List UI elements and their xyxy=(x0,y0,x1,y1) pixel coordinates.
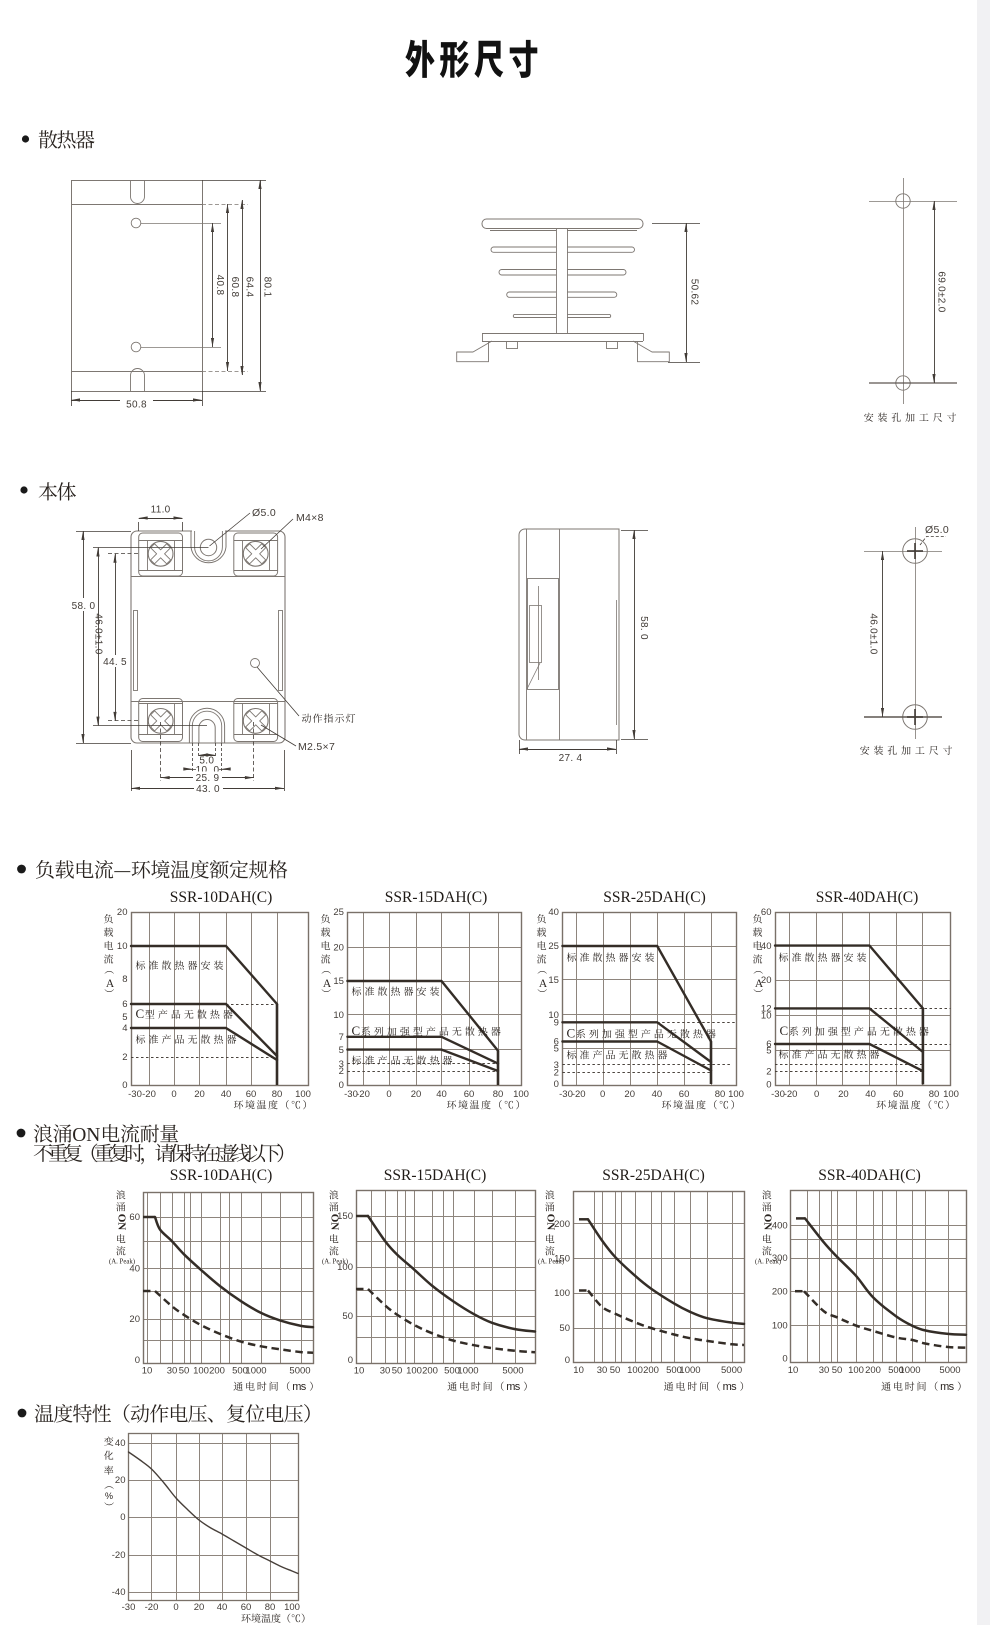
svg-text:2: 2 xyxy=(339,1066,344,1077)
svg-text:5: 5 xyxy=(339,1045,344,1056)
svg-text:60: 60 xyxy=(241,1602,252,1613)
svg-text:SSR-25DAH(C): SSR-25DAH(C) xyxy=(602,1167,704,1184)
svg-text:10: 10 xyxy=(573,1365,584,1376)
svg-text:100: 100 xyxy=(284,1602,300,1613)
svg-text:ON: ON xyxy=(545,1214,557,1231)
svg-text:ON: ON xyxy=(116,1214,128,1231)
svg-text:58. 0: 58. 0 xyxy=(638,616,649,640)
svg-text:s: s xyxy=(731,1381,737,1393)
svg-text:50: 50 xyxy=(392,1366,403,1377)
svg-text:40: 40 xyxy=(761,941,772,952)
svg-text:46.0±1.0: 46.0±1.0 xyxy=(93,613,104,654)
svg-text:0: 0 xyxy=(120,1512,125,1523)
svg-text:80: 80 xyxy=(272,1089,283,1100)
svg-text:50: 50 xyxy=(179,1366,190,1377)
svg-text:SSR-15DAH(C): SSR-15DAH(C) xyxy=(385,889,487,906)
svg-text:M2.5×7: M2.5×7 xyxy=(298,741,335,753)
svg-text:10: 10 xyxy=(788,1365,799,1376)
svg-text:43. 0: 43. 0 xyxy=(196,784,220,795)
svg-text:80: 80 xyxy=(493,1089,504,1100)
svg-text:100: 100 xyxy=(627,1365,643,1376)
svg-text:SSR-40DAH(C): SSR-40DAH(C) xyxy=(818,1167,920,1184)
svg-text:30: 30 xyxy=(819,1365,830,1376)
svg-text:46.0±1.0: 46.0±1.0 xyxy=(868,613,879,654)
svg-text:-30: -30 xyxy=(128,1089,142,1100)
svg-text:50: 50 xyxy=(610,1365,621,1376)
svg-text:20: 20 xyxy=(194,1089,205,1100)
svg-text:2: 2 xyxy=(122,1052,127,1063)
svg-text:60: 60 xyxy=(246,1089,257,1100)
svg-text:100: 100 xyxy=(513,1089,529,1100)
svg-text:80: 80 xyxy=(929,1089,940,1100)
svg-text:40: 40 xyxy=(221,1089,232,1100)
svg-text:50.8: 50.8 xyxy=(126,400,147,411)
svg-text:200: 200 xyxy=(772,1287,788,1298)
svg-text:60: 60 xyxy=(893,1089,904,1100)
svg-text:20: 20 xyxy=(115,1475,126,1486)
svg-text:5000: 5000 xyxy=(721,1365,742,1376)
svg-text:25. 9: 25. 9 xyxy=(196,773,220,784)
svg-text:1000: 1000 xyxy=(245,1366,266,1377)
svg-text:44. 5: 44. 5 xyxy=(103,657,127,668)
svg-text:6: 6 xyxy=(122,999,127,1010)
svg-text:-20: -20 xyxy=(572,1089,586,1100)
svg-text:200: 200 xyxy=(643,1365,659,1376)
svg-text:(A. Peak): (A. Peak) xyxy=(538,1259,564,1266)
svg-text:A: A xyxy=(323,978,332,990)
svg-text:80: 80 xyxy=(265,1602,276,1613)
svg-text:0: 0 xyxy=(122,1080,127,1091)
svg-text:8: 8 xyxy=(122,974,127,985)
svg-text:5: 5 xyxy=(554,1044,559,1055)
svg-text:-30: -30 xyxy=(122,1602,136,1613)
svg-text:60: 60 xyxy=(464,1089,475,1100)
svg-text:20: 20 xyxy=(129,1314,140,1325)
svg-text:C: C xyxy=(567,1026,576,1041)
svg-text:-20: -20 xyxy=(112,1550,126,1561)
svg-text:40: 40 xyxy=(548,907,559,918)
svg-text:200: 200 xyxy=(422,1366,438,1377)
svg-text:100: 100 xyxy=(295,1089,311,1100)
svg-text:10: 10 xyxy=(333,1010,344,1021)
svg-text:SSR-15DAH(C): SSR-15DAH(C) xyxy=(384,1167,486,1184)
svg-text:1000: 1000 xyxy=(899,1365,920,1376)
svg-text:30: 30 xyxy=(167,1366,178,1377)
svg-text:40: 40 xyxy=(115,1438,126,1449)
svg-text:s: s xyxy=(949,1381,955,1393)
svg-text:7: 7 xyxy=(339,1032,344,1043)
svg-text:0: 0 xyxy=(173,1602,178,1613)
svg-text:2: 2 xyxy=(766,1066,771,1077)
svg-text:15: 15 xyxy=(548,975,559,986)
svg-text:Ø5.0: Ø5.0 xyxy=(925,524,949,536)
svg-text:C: C xyxy=(780,1023,789,1038)
svg-text:9: 9 xyxy=(554,1018,559,1029)
svg-text:5: 5 xyxy=(766,1046,771,1057)
svg-text:1000: 1000 xyxy=(679,1365,700,1376)
svg-text:(A. Peak): (A. Peak) xyxy=(322,1259,348,1266)
svg-text:-20: -20 xyxy=(784,1089,798,1100)
svg-text:-20: -20 xyxy=(356,1089,370,1100)
svg-text:-40: -40 xyxy=(112,1587,126,1598)
svg-text:4: 4 xyxy=(122,1023,127,1034)
svg-text:ON: ON xyxy=(329,1214,341,1231)
svg-text:5000: 5000 xyxy=(289,1366,310,1377)
svg-text:60: 60 xyxy=(761,907,772,918)
svg-text:0: 0 xyxy=(386,1089,391,1100)
svg-text:SSR-25DAH(C): SSR-25DAH(C) xyxy=(603,889,705,906)
svg-text:27. 4: 27. 4 xyxy=(559,753,583,764)
svg-text:11.0: 11.0 xyxy=(151,505,171,516)
svg-text:60: 60 xyxy=(679,1089,690,1100)
svg-text:SSR-40DAH(C): SSR-40DAH(C) xyxy=(816,889,918,906)
svg-text:O: O xyxy=(72,1125,86,1146)
svg-text:5000: 5000 xyxy=(939,1365,960,1376)
svg-text:25: 25 xyxy=(333,907,344,918)
svg-text:0: 0 xyxy=(135,1355,140,1366)
svg-text:C: C xyxy=(352,1023,361,1038)
svg-text:30: 30 xyxy=(380,1366,391,1377)
svg-text:(A. Peak): (A. Peak) xyxy=(755,1259,781,1266)
svg-text:10: 10 xyxy=(761,1010,772,1021)
svg-text:50.62: 50.62 xyxy=(689,279,700,306)
svg-text:0: 0 xyxy=(782,1354,787,1365)
svg-text:0: 0 xyxy=(339,1080,344,1091)
svg-text:20: 20 xyxy=(194,1602,205,1613)
svg-text:20: 20 xyxy=(333,943,344,954)
svg-text:100: 100 xyxy=(406,1366,422,1377)
svg-text:100: 100 xyxy=(728,1089,744,1100)
svg-text:15: 15 xyxy=(333,976,344,987)
svg-text:40: 40 xyxy=(217,1602,228,1613)
svg-text:100: 100 xyxy=(554,1288,570,1299)
svg-text:40: 40 xyxy=(865,1089,876,1100)
svg-text:-20: -20 xyxy=(142,1089,156,1100)
svg-text:10: 10 xyxy=(354,1366,365,1377)
svg-text:N: N xyxy=(86,1125,100,1146)
svg-text:30: 30 xyxy=(597,1365,608,1376)
svg-text:80.1: 80.1 xyxy=(262,277,273,298)
svg-text:0: 0 xyxy=(171,1089,176,1100)
svg-text:C: C xyxy=(136,1006,145,1021)
svg-text:M4×8: M4×8 xyxy=(296,512,324,524)
svg-text:0: 0 xyxy=(554,1079,559,1090)
svg-text:200: 200 xyxy=(209,1366,225,1377)
svg-text:-30: -30 xyxy=(559,1089,573,1100)
svg-text:0: 0 xyxy=(814,1089,819,1100)
svg-text:50: 50 xyxy=(832,1365,843,1376)
svg-text:100: 100 xyxy=(848,1365,864,1376)
svg-text:40.8: 40.8 xyxy=(214,275,225,296)
svg-text:20: 20 xyxy=(117,907,128,918)
svg-text:200: 200 xyxy=(865,1365,881,1376)
svg-text:69.0±2.0: 69.0±2.0 xyxy=(936,271,947,312)
svg-text:(A. Peak): (A. Peak) xyxy=(109,1259,135,1266)
svg-text:50: 50 xyxy=(342,1311,353,1322)
svg-text:64.4: 64.4 xyxy=(244,277,255,298)
svg-text:20: 20 xyxy=(624,1089,635,1100)
svg-text:58. 0: 58. 0 xyxy=(72,601,96,612)
svg-text:60.8: 60.8 xyxy=(229,277,240,298)
svg-text:5000: 5000 xyxy=(502,1366,523,1377)
svg-text:40: 40 xyxy=(436,1089,447,1100)
svg-text:10: 10 xyxy=(117,941,128,952)
svg-text:100: 100 xyxy=(193,1366,209,1377)
svg-text:1000: 1000 xyxy=(457,1366,478,1377)
svg-text:50: 50 xyxy=(559,1323,570,1334)
svg-text:100: 100 xyxy=(772,1321,788,1332)
svg-text:2: 2 xyxy=(554,1067,559,1078)
svg-text:20: 20 xyxy=(411,1089,422,1100)
svg-text:0: 0 xyxy=(565,1355,570,1366)
svg-text:0: 0 xyxy=(348,1355,353,1366)
svg-text:A: A xyxy=(755,978,764,990)
svg-text:-20: -20 xyxy=(145,1602,159,1613)
svg-text:80: 80 xyxy=(715,1089,726,1100)
svg-text:Ø5.0: Ø5.0 xyxy=(252,507,276,519)
svg-text:0: 0 xyxy=(600,1089,605,1100)
svg-text:ON: ON xyxy=(762,1214,774,1231)
svg-text:60: 60 xyxy=(129,1212,140,1223)
svg-text:5: 5 xyxy=(122,1012,127,1023)
svg-text:s: s xyxy=(301,1381,307,1393)
svg-text:SSR-10DAH(C): SSR-10DAH(C) xyxy=(170,889,272,906)
svg-text:s: s xyxy=(515,1381,521,1393)
svg-text:SSR-10DAH(C): SSR-10DAH(C) xyxy=(170,1167,272,1184)
svg-text:25: 25 xyxy=(548,941,559,952)
svg-text:A: A xyxy=(106,978,115,990)
svg-text:40: 40 xyxy=(652,1089,663,1100)
svg-text:%: % xyxy=(105,1491,113,1501)
svg-text:20: 20 xyxy=(838,1089,849,1100)
svg-text:A: A xyxy=(539,978,548,990)
svg-text:100: 100 xyxy=(943,1089,959,1100)
svg-text:10: 10 xyxy=(142,1366,153,1377)
